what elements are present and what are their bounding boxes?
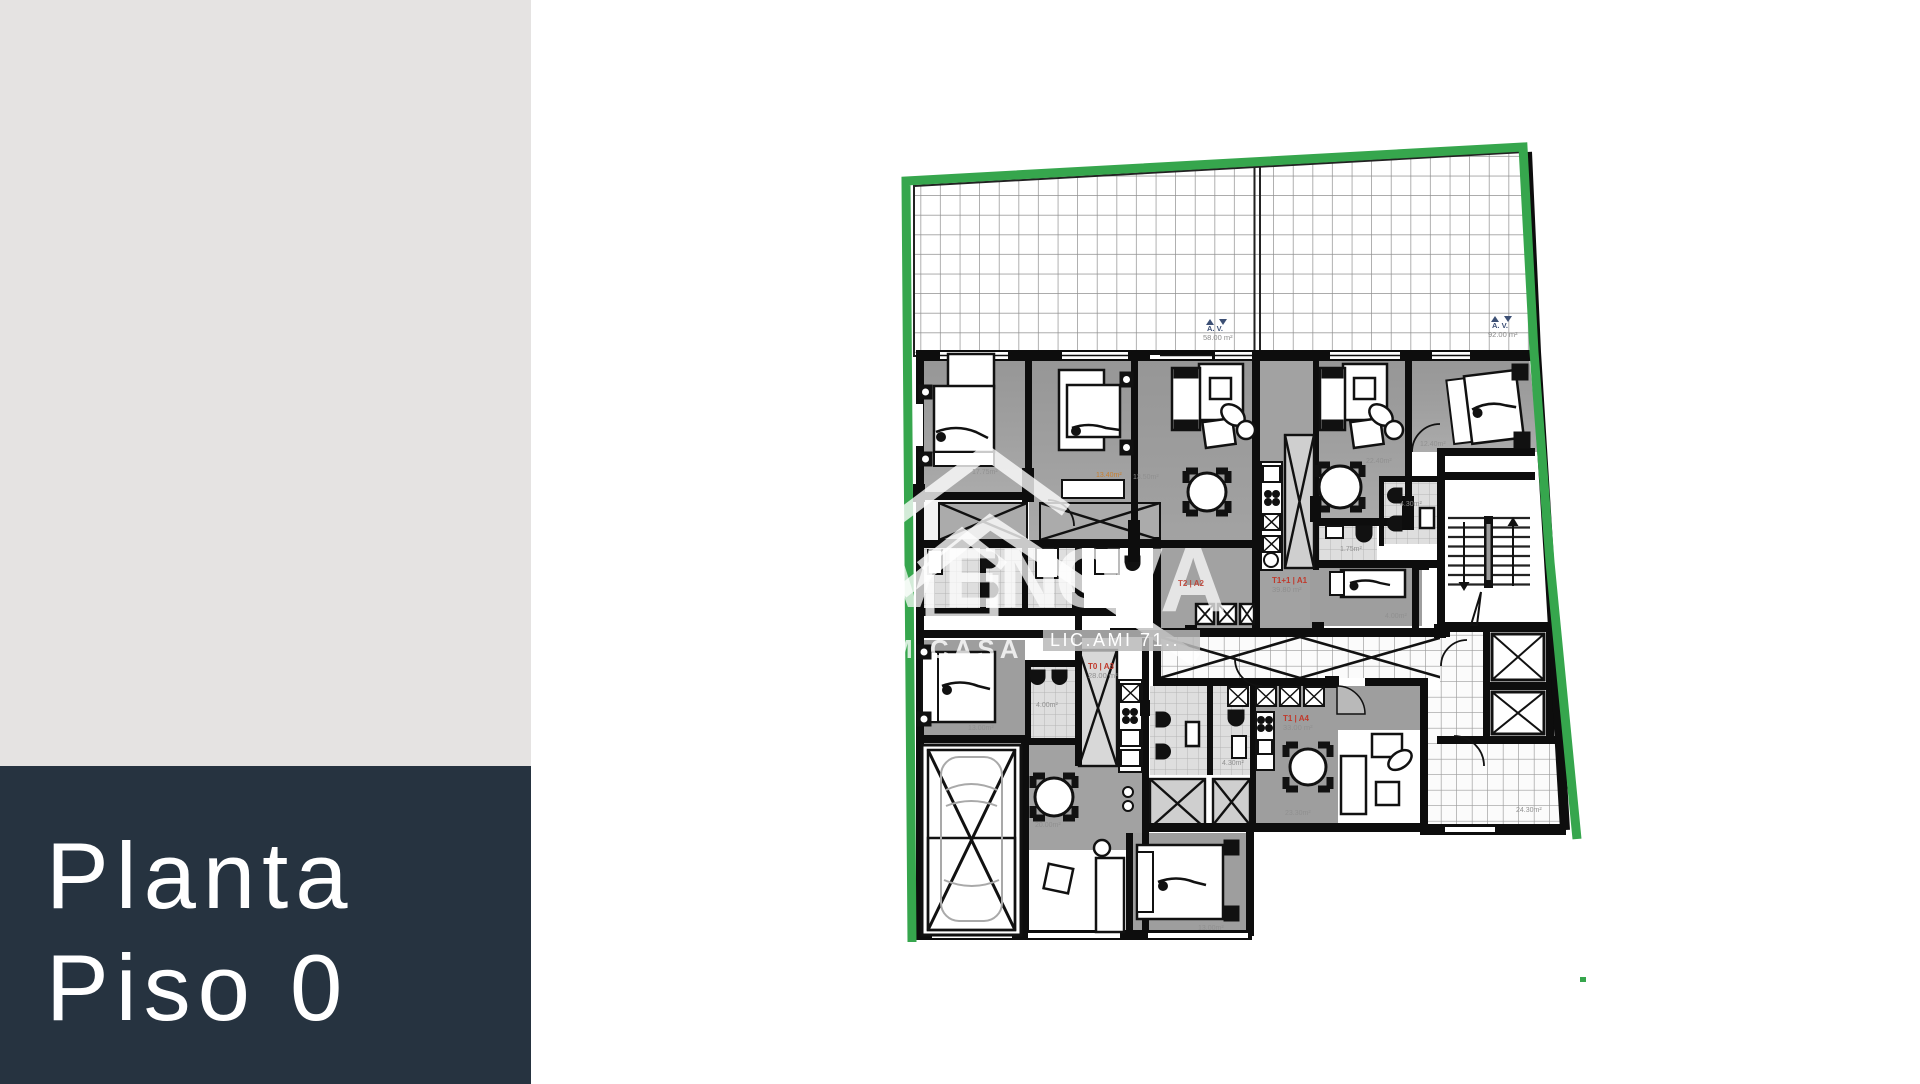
svg-text:58.00 m²: 58.00 m²	[1203, 333, 1233, 342]
svg-text:20.00m²: 20.00m²	[1035, 822, 1061, 829]
svg-text:13.50m²: 13.50m²	[1133, 474, 1159, 481]
svg-text:V: V	[1107, 531, 1163, 625]
svg-text:A. V.: A. V.	[1492, 321, 1508, 330]
svg-text:33.00 m²: 33.00 m²	[1283, 723, 1313, 732]
svg-text:Piso 0: Piso 0	[46, 935, 349, 1040]
svg-text:4.00m²: 4.00m²	[1036, 702, 1058, 709]
svg-text:N: N	[999, 531, 1060, 625]
svg-text:M CASA: M CASA	[891, 634, 1024, 664]
svg-text:24.30m²: 24.30m²	[1516, 807, 1542, 814]
svg-text:4.00m²: 4.00m²	[1385, 613, 1407, 620]
svg-text:T1 | A4: T1 | A4	[1283, 714, 1310, 723]
svg-text:22.40m²: 22.40m²	[1366, 458, 1392, 465]
svg-text:V: V	[886, 531, 942, 625]
svg-text:13.00m²: 13.00m²	[1198, 925, 1224, 932]
svg-text:1.75m²: 1.75m²	[1340, 546, 1362, 553]
svg-text:LIC.AMI 71..: LIC.AMI 71..	[1050, 630, 1180, 650]
svg-text:13.40m²: 13.40m²	[1096, 472, 1122, 479]
svg-text:13.00m²: 13.00m²	[968, 725, 994, 732]
svg-text:12.40m²: 12.40m²	[1420, 441, 1446, 448]
svg-text:T2 | A2: T2 | A2	[1178, 579, 1205, 588]
svg-text:A. V.: A. V.	[1207, 324, 1223, 333]
svg-text:28.00 m²: 28.00 m²	[1088, 671, 1118, 680]
svg-text:Planta: Planta	[46, 823, 355, 928]
svg-text:92.00 m²: 92.00 m²	[1488, 330, 1518, 339]
svg-text:T1+1 | A1: T1+1 | A1	[1272, 576, 1308, 585]
svg-text:39.80 m²: 39.80 m²	[1272, 585, 1302, 594]
svg-text:E: E	[944, 531, 1000, 625]
svg-text:23.30m²: 23.30m²	[1285, 810, 1311, 817]
svg-text:4.30m²: 4.30m²	[1400, 501, 1422, 508]
svg-text:4.30m²: 4.30m²	[1222, 760, 1244, 767]
svg-text:T0 | A3: T0 | A3	[1088, 662, 1115, 671]
svg-text:17.75m²: 17.75m²	[972, 469, 998, 476]
